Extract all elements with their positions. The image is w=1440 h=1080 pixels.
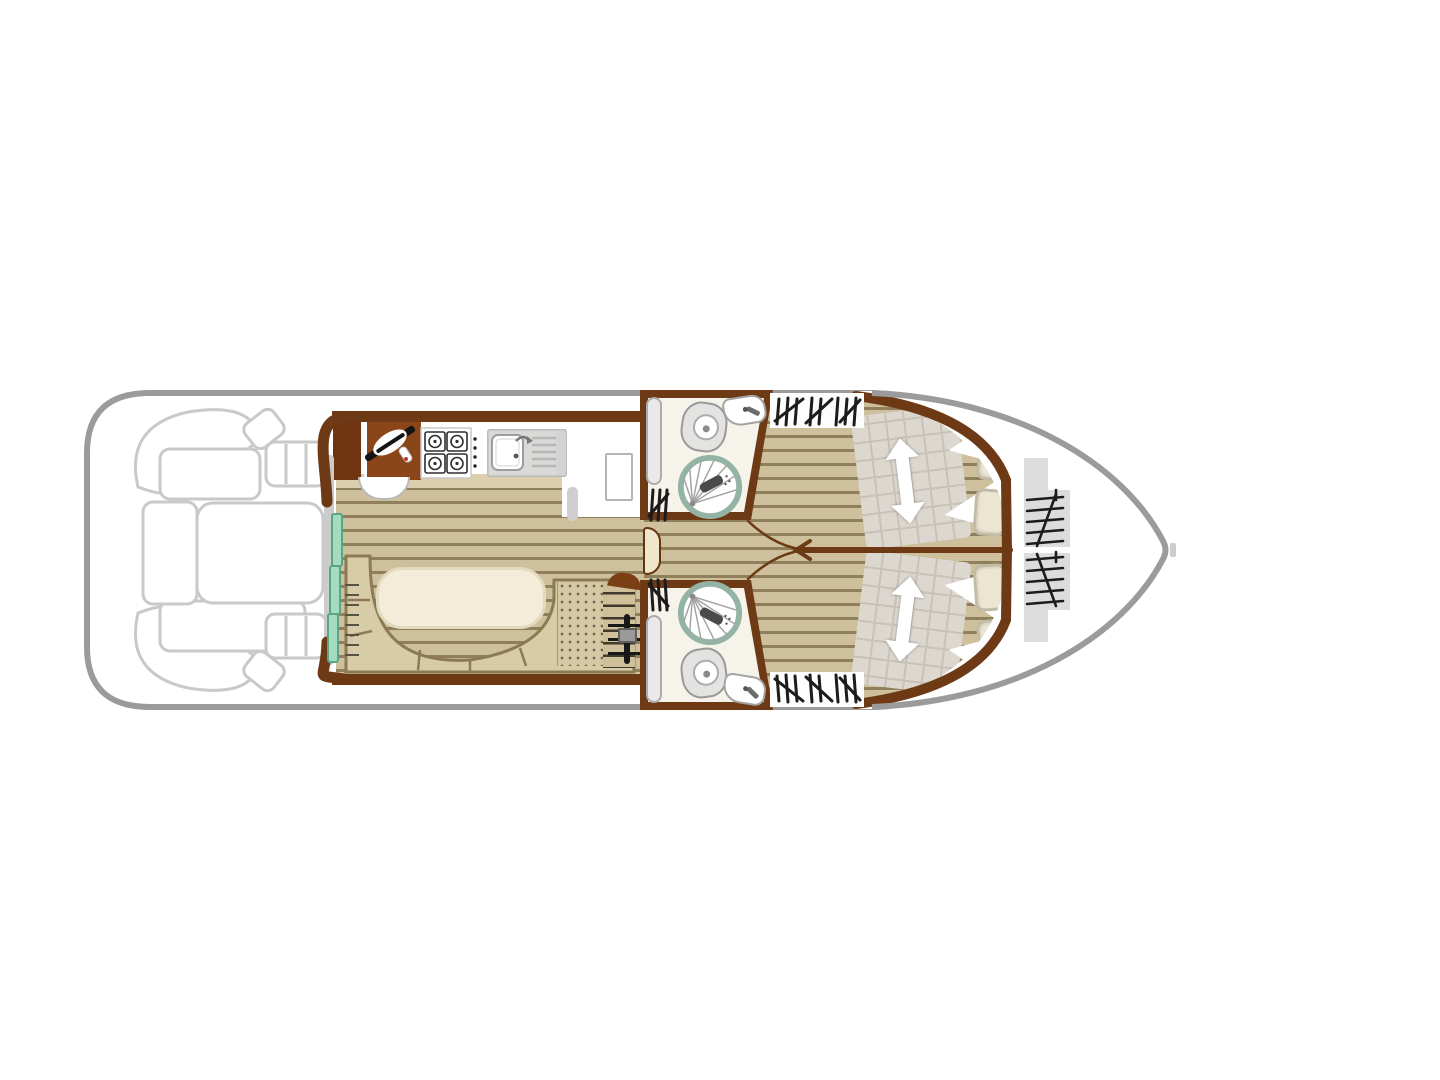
cabin-front-wall (323, 417, 344, 502)
door-swing (748, 552, 794, 579)
sliding-door-icon (327, 613, 339, 663)
dinette-table (376, 567, 546, 629)
shower-icon (676, 579, 744, 647)
sliding-door-icon (331, 513, 343, 567)
sliding-door-icon (329, 565, 341, 615)
houseboat-floor-plan (0, 0, 1440, 1080)
bow-fitting (1170, 543, 1176, 557)
companionway-steps-icon (345, 576, 359, 660)
bathroom-door (646, 397, 662, 485)
corridor-door (643, 527, 661, 575)
bathroom-door (646, 615, 662, 703)
walls-layer (0, 0, 1440, 1080)
saloon-wall (332, 411, 646, 422)
companionway-steps-icon (608, 652, 640, 655)
shower-icon (676, 453, 744, 521)
companionway-steps-icon (608, 624, 640, 627)
convertible-slats (557, 582, 605, 666)
step-block (618, 628, 637, 643)
door-swing (748, 521, 794, 548)
saloon-wall (332, 674, 646, 685)
